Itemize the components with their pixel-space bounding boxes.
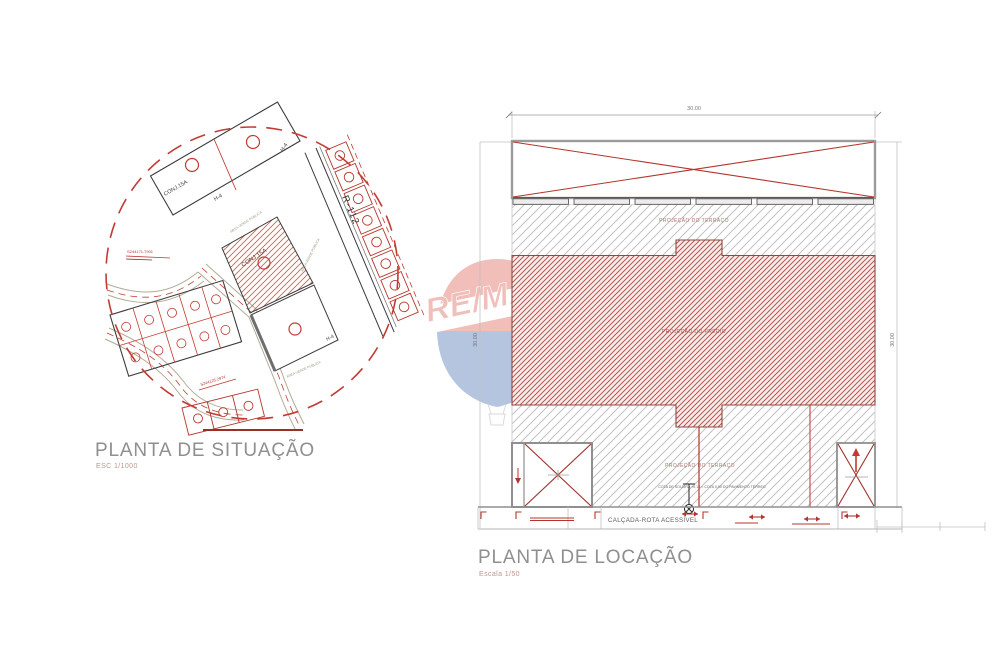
- balloon-basket: [488, 404, 506, 425]
- lot-label-h4-mid: H-4: [213, 193, 224, 203]
- stair-right-box: [837, 443, 875, 507]
- front-setback-block: [512, 141, 875, 198]
- bottom-lot-row: [182, 389, 264, 435]
- survey-coord-north: S244171.7901: [127, 249, 154, 254]
- garage-left-box: [512, 443, 592, 507]
- threshold-note: COTA DE SOLEIRA +0,15 = COTA 0,00 DO PAV…: [658, 484, 766, 489]
- location-plan-scale: Escala 1/50: [479, 571, 520, 578]
- situation-plan-labels: CONJ.15A H-4 H-4 R-112 CONJ.15A H-4 ÁREA…: [127, 142, 362, 387]
- lot-label-h4-upper: H-4: [280, 142, 290, 153]
- situation-plan-scale: ESC 1/1000: [96, 463, 138, 470]
- lot-label-conj-upper: CONJ.15A: [163, 179, 189, 198]
- terrace-lower-label: PROJEÇÃO DO TERRAÇO: [665, 462, 735, 469]
- green-area-label-2: ÁREA VERDE PÚBLICA: [299, 236, 321, 272]
- lower-lot-grid: [110, 281, 242, 377]
- terrace-upper-label: PROJEÇÃO DO TERRAÇO: [659, 217, 729, 224]
- building-label: PROJEÇÃO DO PRÉDIO: [662, 328, 726, 335]
- sidewalk-label: CALÇADA-ROTA ACESSÍVEL: [608, 517, 698, 524]
- architectural-drawing-sheet: RE/MAX: [0, 0, 1000, 667]
- situation-plan-drawing: CONJ.15A H-4 H-4 R-112 CONJ.15A H-4 ÁREA…: [105, 102, 425, 435]
- location-plan-title: PLANTA DE LOCAÇÃO: [478, 547, 693, 569]
- dim-top: 30.00: [687, 106, 701, 112]
- ramp-arrow-icons: [682, 511, 860, 521]
- dim-left: 30.00: [473, 333, 479, 347]
- upper-lots-block: [151, 102, 301, 215]
- survey-coord-south: S244125.2974: [200, 374, 227, 387]
- situation-plan-title: PLANTA DE SITUAÇÃO: [95, 440, 315, 462]
- wall-segment-tabs: [513, 199, 874, 205]
- dim-right: 30.00: [890, 333, 896, 347]
- location-plan-drawing: 30.00 30.00 30.00: [473, 106, 985, 533]
